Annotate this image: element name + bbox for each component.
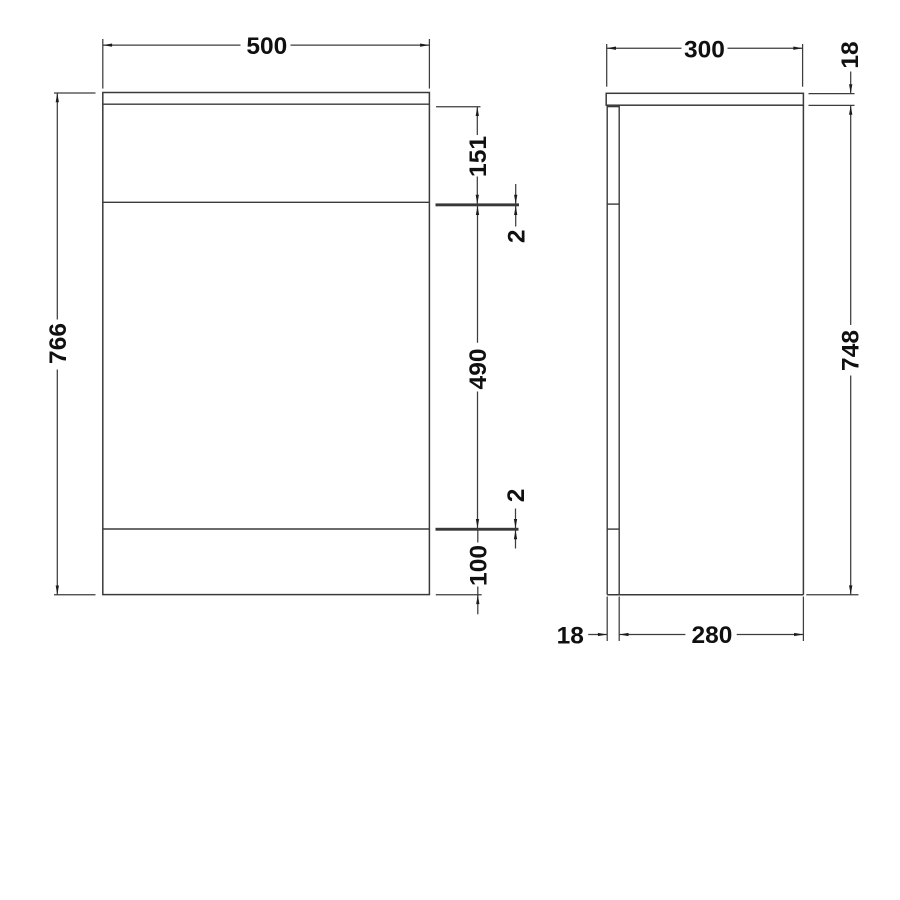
svg-text:300: 300: [684, 37, 725, 64]
svg-text:280: 280: [692, 622, 733, 649]
svg-text:766: 766: [45, 323, 72, 364]
svg-text:2: 2: [503, 229, 530, 243]
svg-text:18: 18: [837, 41, 864, 68]
svg-text:2: 2: [503, 489, 530, 503]
svg-text:151: 151: [465, 136, 492, 177]
svg-text:100: 100: [466, 545, 493, 586]
svg-text:748: 748: [838, 330, 865, 371]
svg-text:490: 490: [465, 349, 492, 390]
svg-text:500: 500: [246, 33, 287, 60]
svg-text:18: 18: [557, 623, 584, 650]
